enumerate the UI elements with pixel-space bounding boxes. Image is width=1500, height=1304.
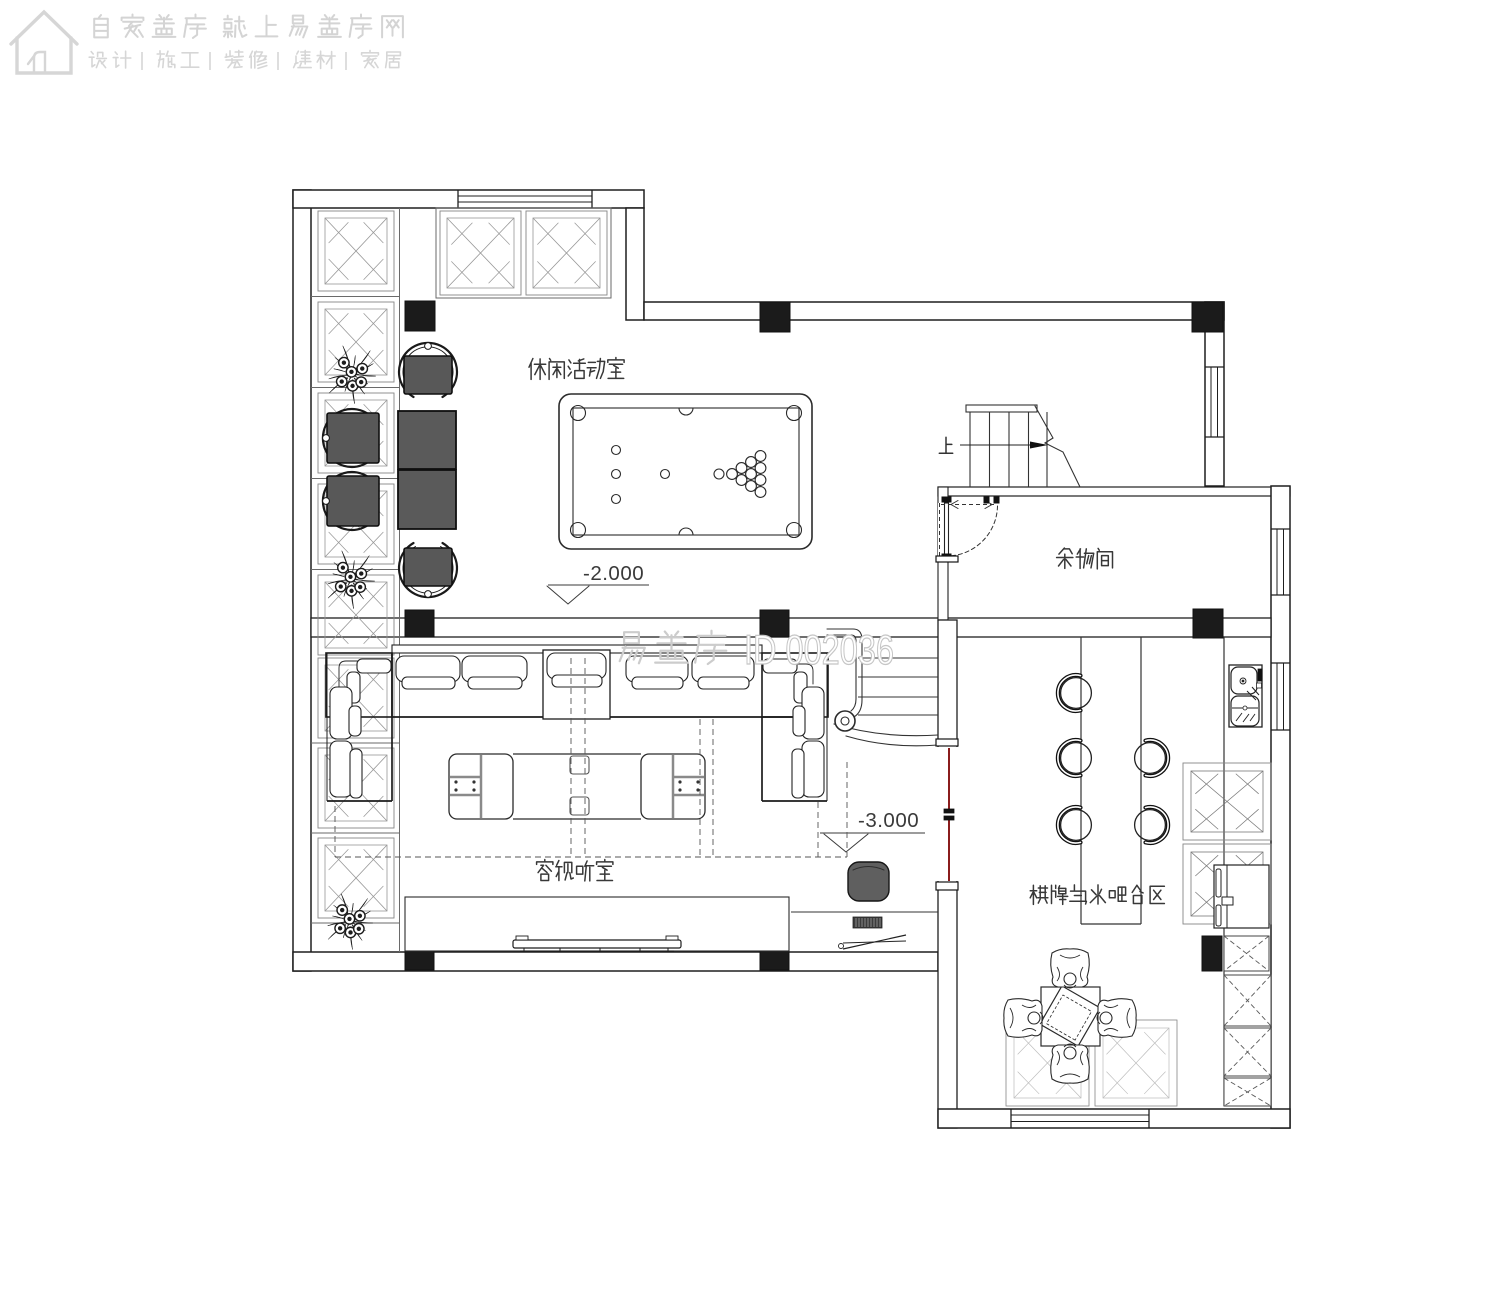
svg-text:-2.000: -2.000 [583,562,644,585]
svg-text:ID 002036: ID 002036 [744,626,894,673]
svg-text:-3.000: -3.000 [858,809,919,832]
